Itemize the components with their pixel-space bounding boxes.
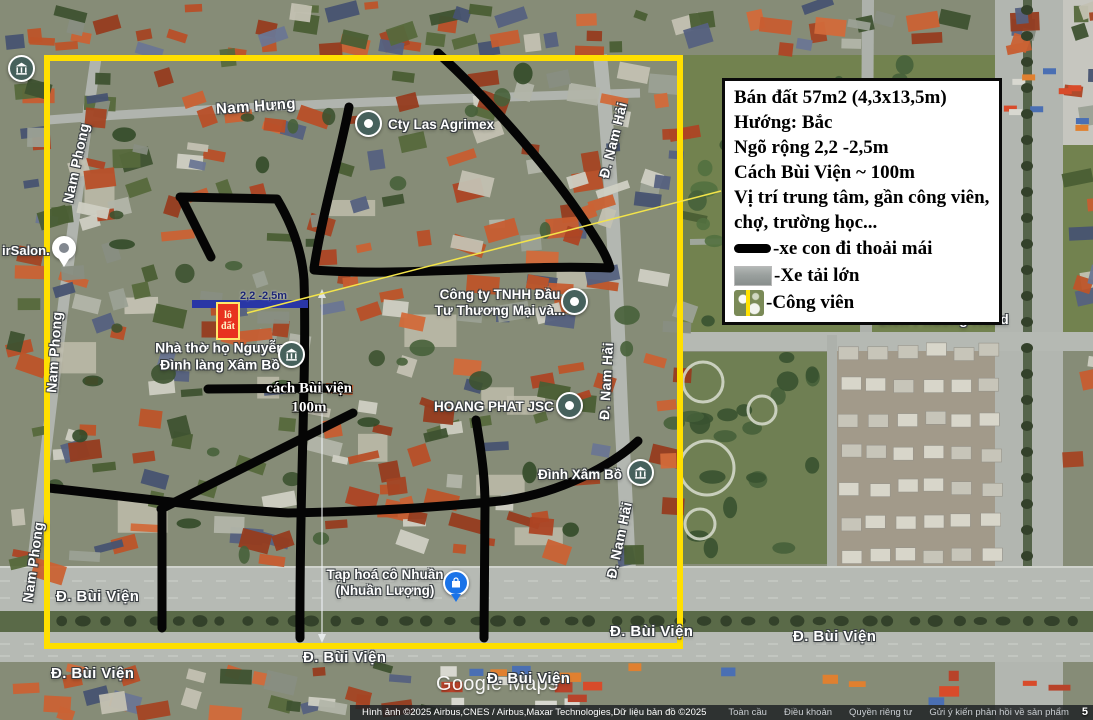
listing-distance: Cách Bùi Viện ~ 100m (734, 160, 991, 185)
listing-annotation-box: Bán đất 57m2 (4,3x13,5m) Hướng: Bắc Ngõ … (722, 78, 1002, 325)
link-feedback[interactable]: Gửi ý kiến phản hồi về sản phẩm (929, 708, 1068, 718)
place-label-line1: Công ty TNHH Đầu (435, 287, 565, 303)
street-label-bui-vien-2: Đ. Bùi Viện (610, 624, 693, 639)
temple-poi-icon-nha-tho[interactable] (278, 341, 305, 368)
temple-icon (284, 347, 299, 362)
place-label-line2: Đình làng Xâm Bồ (155, 356, 285, 373)
business-poi-icon-congty[interactable] (561, 288, 588, 315)
store-pin-icon[interactable] (443, 570, 469, 596)
street-label-bui-vien-5: Đ. Bùi Viện (51, 666, 134, 681)
place-label-line2: (Nhuần Lượng) (326, 583, 443, 599)
pin-pointer (59, 259, 69, 267)
street-label-bui-vien-3: Đ. Bùi Viện (793, 629, 876, 644)
place-label-tap-hoa[interactable]: Tạp hoá cô Nhuần (Nhuần Lượng) (326, 567, 443, 599)
street-label-bui-vien-4: Đ. Bùi Viện (303, 650, 386, 665)
legend-label: -xe con đi thoải mái (773, 236, 932, 261)
salon-pin-icon[interactable] (52, 236, 76, 260)
place-label-dinh-xam-bo[interactable]: Đình Xâm Bồ (538, 467, 622, 483)
listing-location-note: Vị trí trung tâm, gần công viên, chợ, tr… (734, 185, 991, 235)
shopping-bag-icon (450, 577, 462, 589)
link-terms[interactable]: Điều khoản (784, 708, 832, 718)
plot-marker-label: đất (221, 321, 235, 333)
distance-note-line1: cách Bùi viện (266, 379, 352, 398)
legend-row-truck: -Xe tải lớn (734, 262, 991, 289)
listing-title: Bán đất 57m2 (4,3x13,5m) (734, 85, 991, 110)
temple-poi-icon-topleft[interactable] (8, 55, 35, 82)
street-label-bui-vien-1: Đ. Bùi Viện (56, 589, 139, 604)
place-label-agrimex[interactable]: Cty Las Agrimex (388, 117, 494, 133)
legend-row-park: -Công viên (734, 289, 991, 316)
business-poi-icon-hoang-phat[interactable] (556, 392, 583, 419)
place-label-nha-tho[interactable]: Nhà thờ họ Nguyễn Đình làng Xâm Bồ (155, 339, 285, 372)
place-label-congty-tnhh[interactable]: Công ty TNHH Đầu Tư Thương Mại và... (435, 287, 565, 319)
street-label-nam-hai-2: Đ. Nam Hải (597, 342, 615, 421)
distance-note: cách Bùi viện 100m (266, 379, 352, 417)
plot-marker: lô đất (216, 302, 240, 340)
temple-poi-icon-dinh[interactable] (627, 459, 654, 486)
place-label-line2: Tư Thương Mại và... (435, 303, 565, 319)
place-label-line1: Tạp hoá cô Nhuần (326, 567, 443, 583)
place-label-hoang-phat[interactable]: HOANG PHAT JSC (434, 399, 554, 415)
temple-icon (14, 61, 29, 76)
street-label-bui-vien-6: Đ. Bùi Viện (487, 671, 570, 686)
gray-road-swatch (734, 266, 772, 286)
black-road-swatch (734, 244, 771, 253)
listing-direction: Hướng: Bắc (734, 110, 991, 135)
imagery-attribution: Hình ảnh ©2025 Airbus,CNES / Airbus,Maxa… (362, 708, 706, 718)
temple-icon (633, 465, 648, 480)
place-label-line1: Nhà thờ họ Nguyễn (155, 339, 285, 356)
alley-width-label: 2,2 -2,5m (240, 291, 287, 302)
link-global[interactable]: Toàn cầu (728, 708, 767, 718)
place-label-salon[interactable]: irSalon. (2, 243, 50, 258)
pin-pointer (451, 594, 461, 602)
attribution-links: Toàn cầu Điều khoản Quyền riêng tư Gửi ý… (728, 708, 1068, 718)
park-swatch (734, 290, 764, 316)
legend-row-car: -xe con đi thoải mái (734, 235, 991, 262)
legend-label: -Công viên (766, 290, 854, 315)
attribution-bar: Hình ảnh ©2025 Airbus,CNES / Airbus,Maxa… (350, 705, 1093, 720)
map-canvas[interactable]: Nam Hưng Nam Phong Nam Phong Nam Phong Đ… (0, 0, 1093, 720)
distance-note-line2: 100m (266, 398, 352, 417)
business-poi-icon-agrimex[interactable] (355, 110, 382, 137)
scale-bar-text: 5 (1082, 707, 1088, 718)
plot-marker-label: lô (224, 310, 232, 322)
listing-alley-width: Ngõ rộng 2,2 -2,5m (734, 135, 991, 160)
link-privacy[interactable]: Quyền riêng tư (849, 708, 912, 718)
legend-label: -Xe tải lớn (774, 263, 859, 288)
